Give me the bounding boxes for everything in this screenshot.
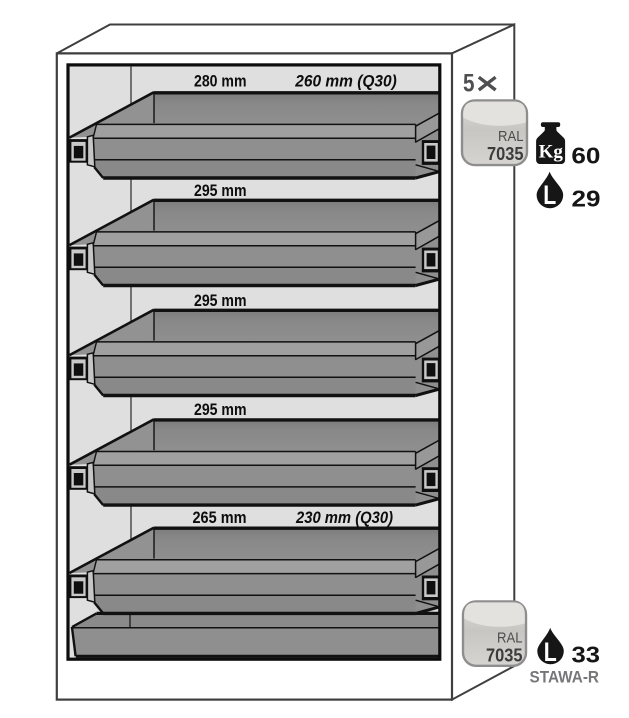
- svg-text:7035: 7035: [487, 143, 524, 164]
- svg-text:L: L: [543, 180, 556, 210]
- svg-text:295 mm: 295 mm: [194, 291, 247, 310]
- svg-text:295 mm: 295 mm: [194, 400, 247, 419]
- svg-text:33: 33: [572, 642, 601, 668]
- svg-text:260 mm (Q30): 260 mm (Q30): [294, 71, 397, 90]
- svg-text:280 mm: 280 mm: [194, 71, 247, 90]
- svg-text:Kg: Kg: [539, 142, 564, 163]
- svg-text:265 mm: 265 mm: [193, 508, 247, 527]
- svg-text:29: 29: [572, 186, 601, 212]
- svg-text:STAWA-R: STAWA-R: [530, 669, 600, 687]
- svg-text:230 mm (Q30): 230 mm (Q30): [295, 508, 393, 527]
- svg-text:5: 5: [463, 69, 475, 97]
- svg-text:295 mm: 295 mm: [194, 181, 247, 200]
- svg-text:7035: 7035: [486, 644, 523, 665]
- svg-text:60: 60: [571, 143, 600, 169]
- svg-text:L: L: [544, 637, 557, 667]
